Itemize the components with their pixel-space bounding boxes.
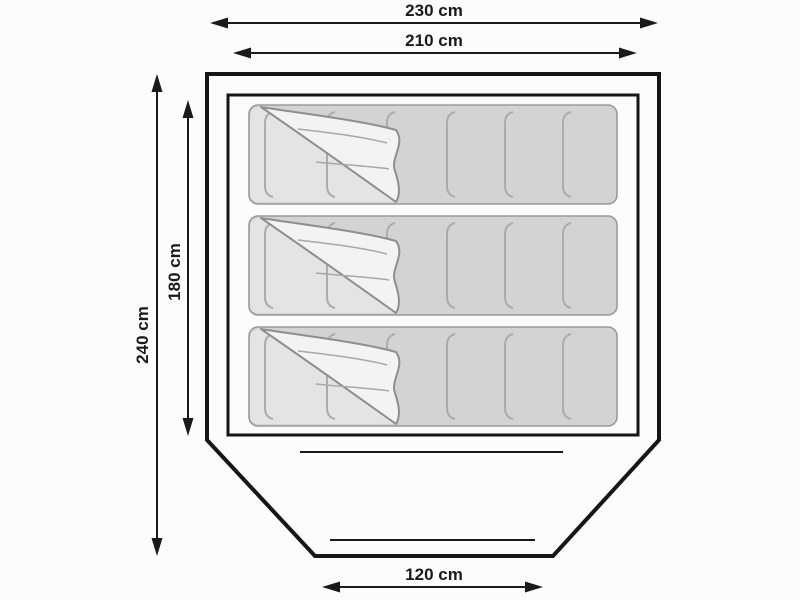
- dimension-inner-width: 210 cm: [233, 31, 637, 59]
- tent-floorplan-page: 230 cm 210 cm 240 cm 180 cm: [0, 0, 800, 600]
- dimension-outer-width: 230 cm: [210, 1, 658, 29]
- arrowhead-down-icon: [152, 538, 163, 556]
- arrowhead-right-icon: [640, 18, 658, 29]
- arrowhead-up-icon: [152, 74, 163, 92]
- arrowhead-right-icon: [525, 582, 543, 593]
- outer-width-label: 230 cm: [405, 1, 463, 20]
- arrowhead-left-icon: [210, 18, 228, 29]
- dimension-outer-depth: 240 cm: [133, 74, 163, 556]
- arrowhead-left-icon: [233, 48, 251, 59]
- arrowhead-down-icon: [183, 418, 194, 436]
- arrowhead-left-icon: [322, 582, 340, 593]
- entrance-width-label: 120 cm: [405, 565, 463, 584]
- inner-depth-label: 180 cm: [165, 243, 184, 301]
- sleeping-mat-1: [249, 105, 617, 204]
- dimension-inner-depth: 180 cm: [165, 100, 194, 436]
- tent-floorplan-diagram: 230 cm 210 cm 240 cm 180 cm: [0, 0, 800, 600]
- dimension-entrance-width: 120 cm: [322, 565, 543, 593]
- arrowhead-right-icon: [619, 48, 637, 59]
- arrowhead-up-icon: [183, 100, 194, 118]
- inner-width-label: 210 cm: [405, 31, 463, 50]
- outer-depth-label: 240 cm: [133, 306, 152, 364]
- sleeping-mat-2: [249, 216, 617, 315]
- sleeping-mat-3: [249, 327, 617, 426]
